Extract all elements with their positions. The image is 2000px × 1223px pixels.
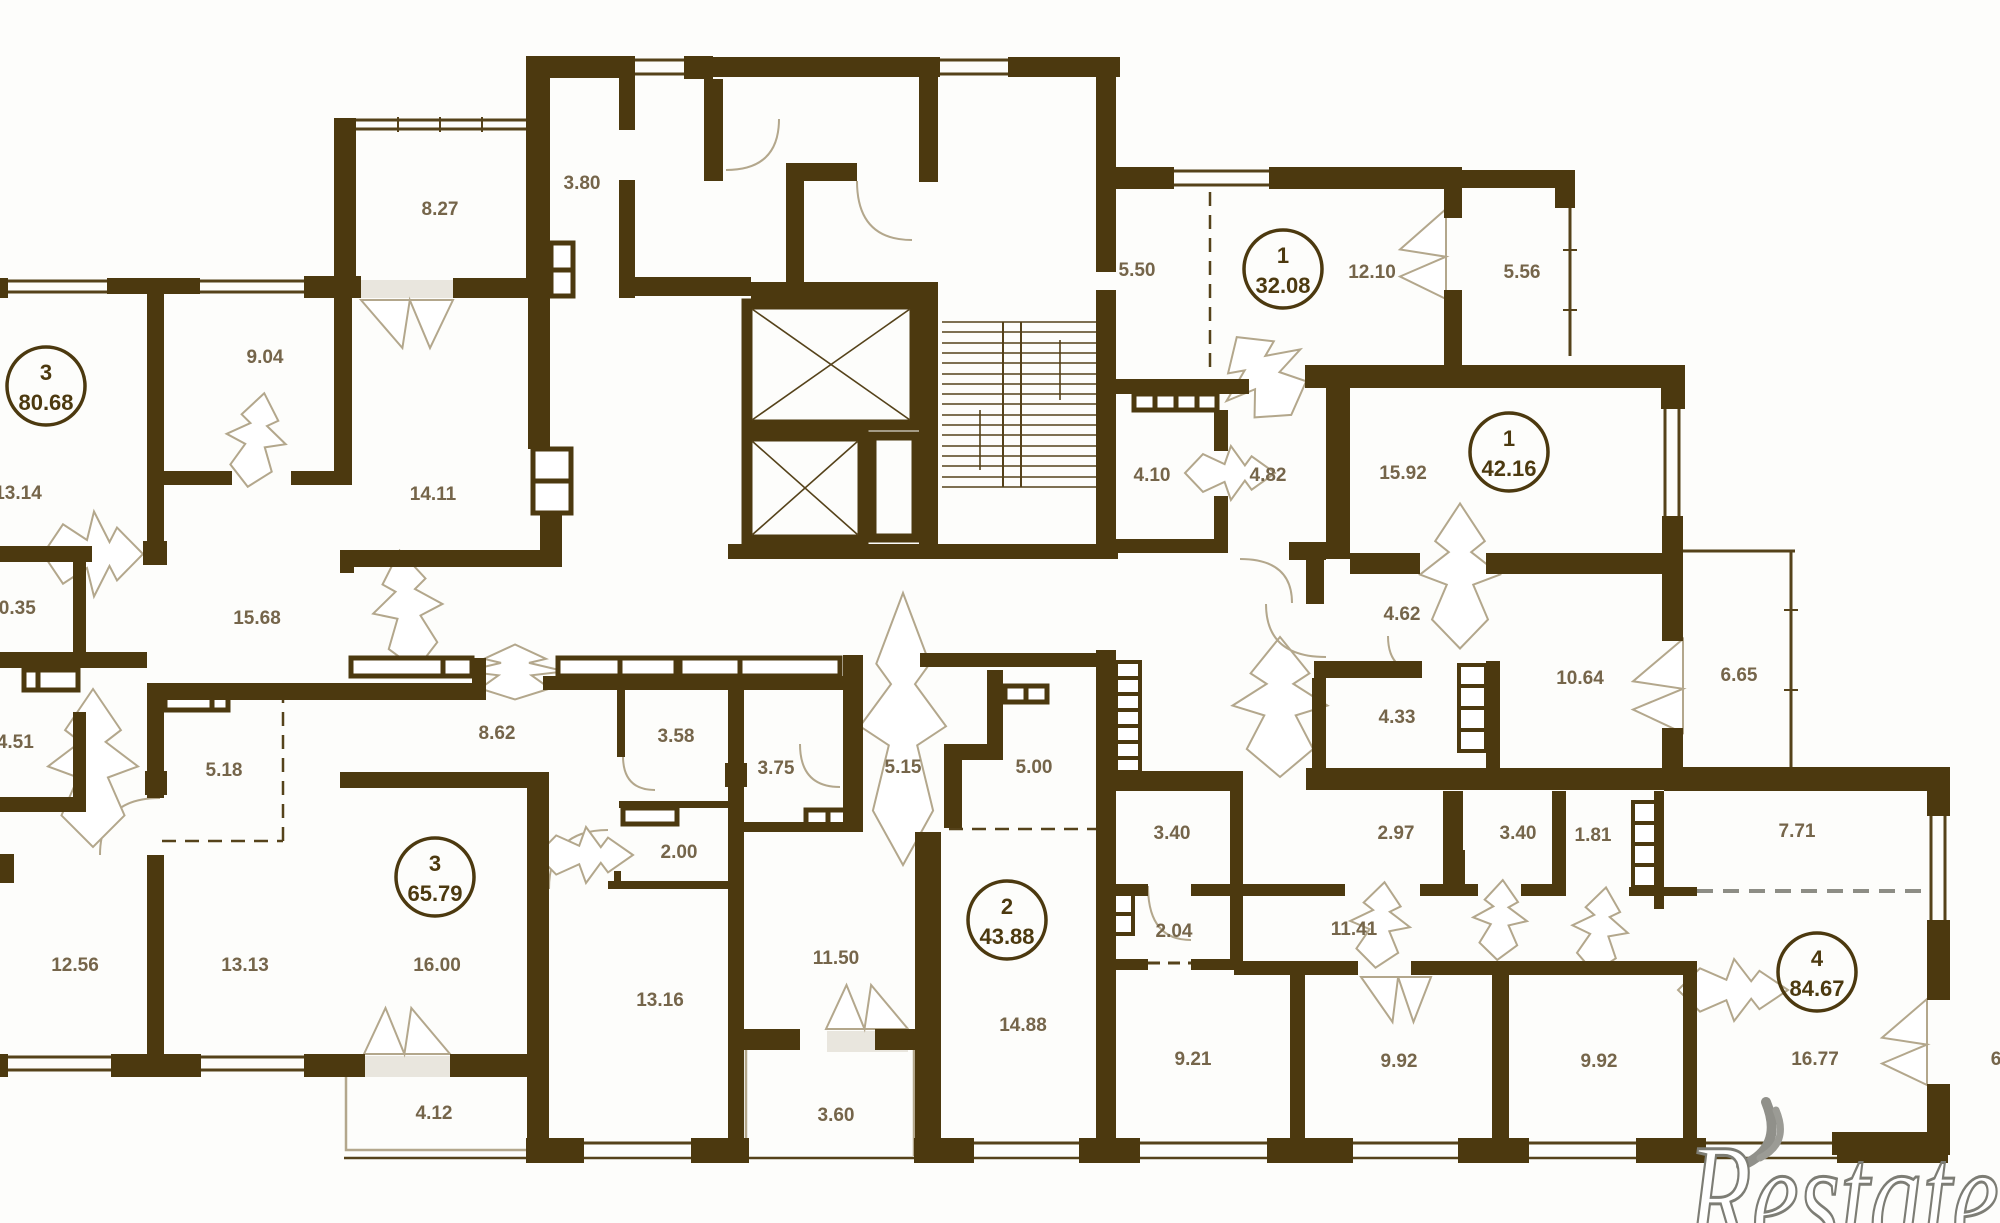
svg-text:13.13: 13.13 (221, 955, 269, 976)
svg-text:10.64: 10.64 (1556, 668, 1604, 689)
svg-text:14.88: 14.88 (999, 1015, 1047, 1036)
svg-text:8.62: 8.62 (479, 723, 516, 744)
svg-text:3: 3 (40, 360, 52, 385)
svg-text:2.97: 2.97 (1378, 823, 1415, 844)
svg-text:11.50: 11.50 (813, 948, 860, 969)
svg-text:5.50: 5.50 (1119, 260, 1156, 281)
svg-text:15.92: 15.92 (1379, 463, 1427, 484)
svg-text:14.51: 14.51 (0, 732, 34, 753)
svg-text:8.27: 8.27 (422, 199, 459, 220)
svg-text:80.68: 80.68 (18, 390, 73, 415)
svg-text:Restate: Restate (1686, 1114, 1999, 1223)
svg-text:3.80: 3.80 (564, 173, 601, 194)
svg-text:9.04: 9.04 (247, 347, 284, 368)
svg-text:42.16: 42.16 (1481, 456, 1536, 481)
svg-text:3.40: 3.40 (1500, 823, 1537, 844)
svg-text:2.04: 2.04 (1156, 921, 1193, 942)
svg-text:2.00: 2.00 (661, 842, 698, 863)
svg-text:10.35: 10.35 (0, 598, 36, 619)
svg-text:5.15: 5.15 (885, 757, 922, 778)
svg-text:15.68: 15.68 (233, 608, 281, 629)
svg-text:1: 1 (1277, 243, 1289, 268)
svg-text:16.00: 16.00 (413, 955, 461, 976)
svg-text:2: 2 (1001, 894, 1013, 919)
svg-text:3: 3 (429, 851, 441, 876)
svg-text:84.67: 84.67 (1789, 976, 1844, 1001)
svg-text:65.79: 65.79 (407, 881, 462, 906)
svg-text:6.65: 6.65 (1721, 665, 1758, 686)
svg-text:4.33: 4.33 (1379, 707, 1416, 728)
svg-text:3.75: 3.75 (758, 758, 795, 779)
svg-text:9.21: 9.21 (1175, 1049, 1212, 1070)
svg-text:7.71: 7.71 (1779, 821, 1816, 842)
svg-text:4.10: 4.10 (1134, 465, 1171, 486)
svg-text:1: 1 (1503, 426, 1515, 451)
svg-text:16.77: 16.77 (1791, 1049, 1839, 1070)
svg-text:13.14: 13.14 (0, 483, 42, 504)
svg-text:5.56: 5.56 (1504, 262, 1541, 283)
svg-text:6: 6 (1991, 1049, 2000, 1070)
svg-text:12.56: 12.56 (51, 955, 99, 976)
svg-text:9.92: 9.92 (1581, 1051, 1618, 1072)
svg-text:4: 4 (1811, 946, 1824, 971)
svg-text:4.82: 4.82 (1250, 465, 1287, 486)
svg-text:32.08: 32.08 (1255, 273, 1310, 298)
svg-text:4.12: 4.12 (416, 1103, 453, 1124)
svg-text:3.58: 3.58 (658, 726, 695, 747)
svg-text:3.40: 3.40 (1154, 823, 1191, 844)
svg-text:43.88: 43.88 (979, 924, 1034, 949)
svg-text:5.18: 5.18 (206, 760, 243, 781)
svg-text:5.00: 5.00 (1016, 757, 1053, 778)
svg-text:4.62: 4.62 (1384, 604, 1421, 625)
svg-text:13.16: 13.16 (636, 990, 684, 1011)
svg-text:11.41: 11.41 (1331, 919, 1378, 940)
svg-text:9.92: 9.92 (1381, 1051, 1418, 1072)
svg-text:1.81: 1.81 (1575, 825, 1612, 846)
svg-text:12.10: 12.10 (1348, 262, 1396, 283)
svg-text:14.11: 14.11 (410, 484, 457, 505)
svg-text:3.60: 3.60 (818, 1105, 855, 1126)
